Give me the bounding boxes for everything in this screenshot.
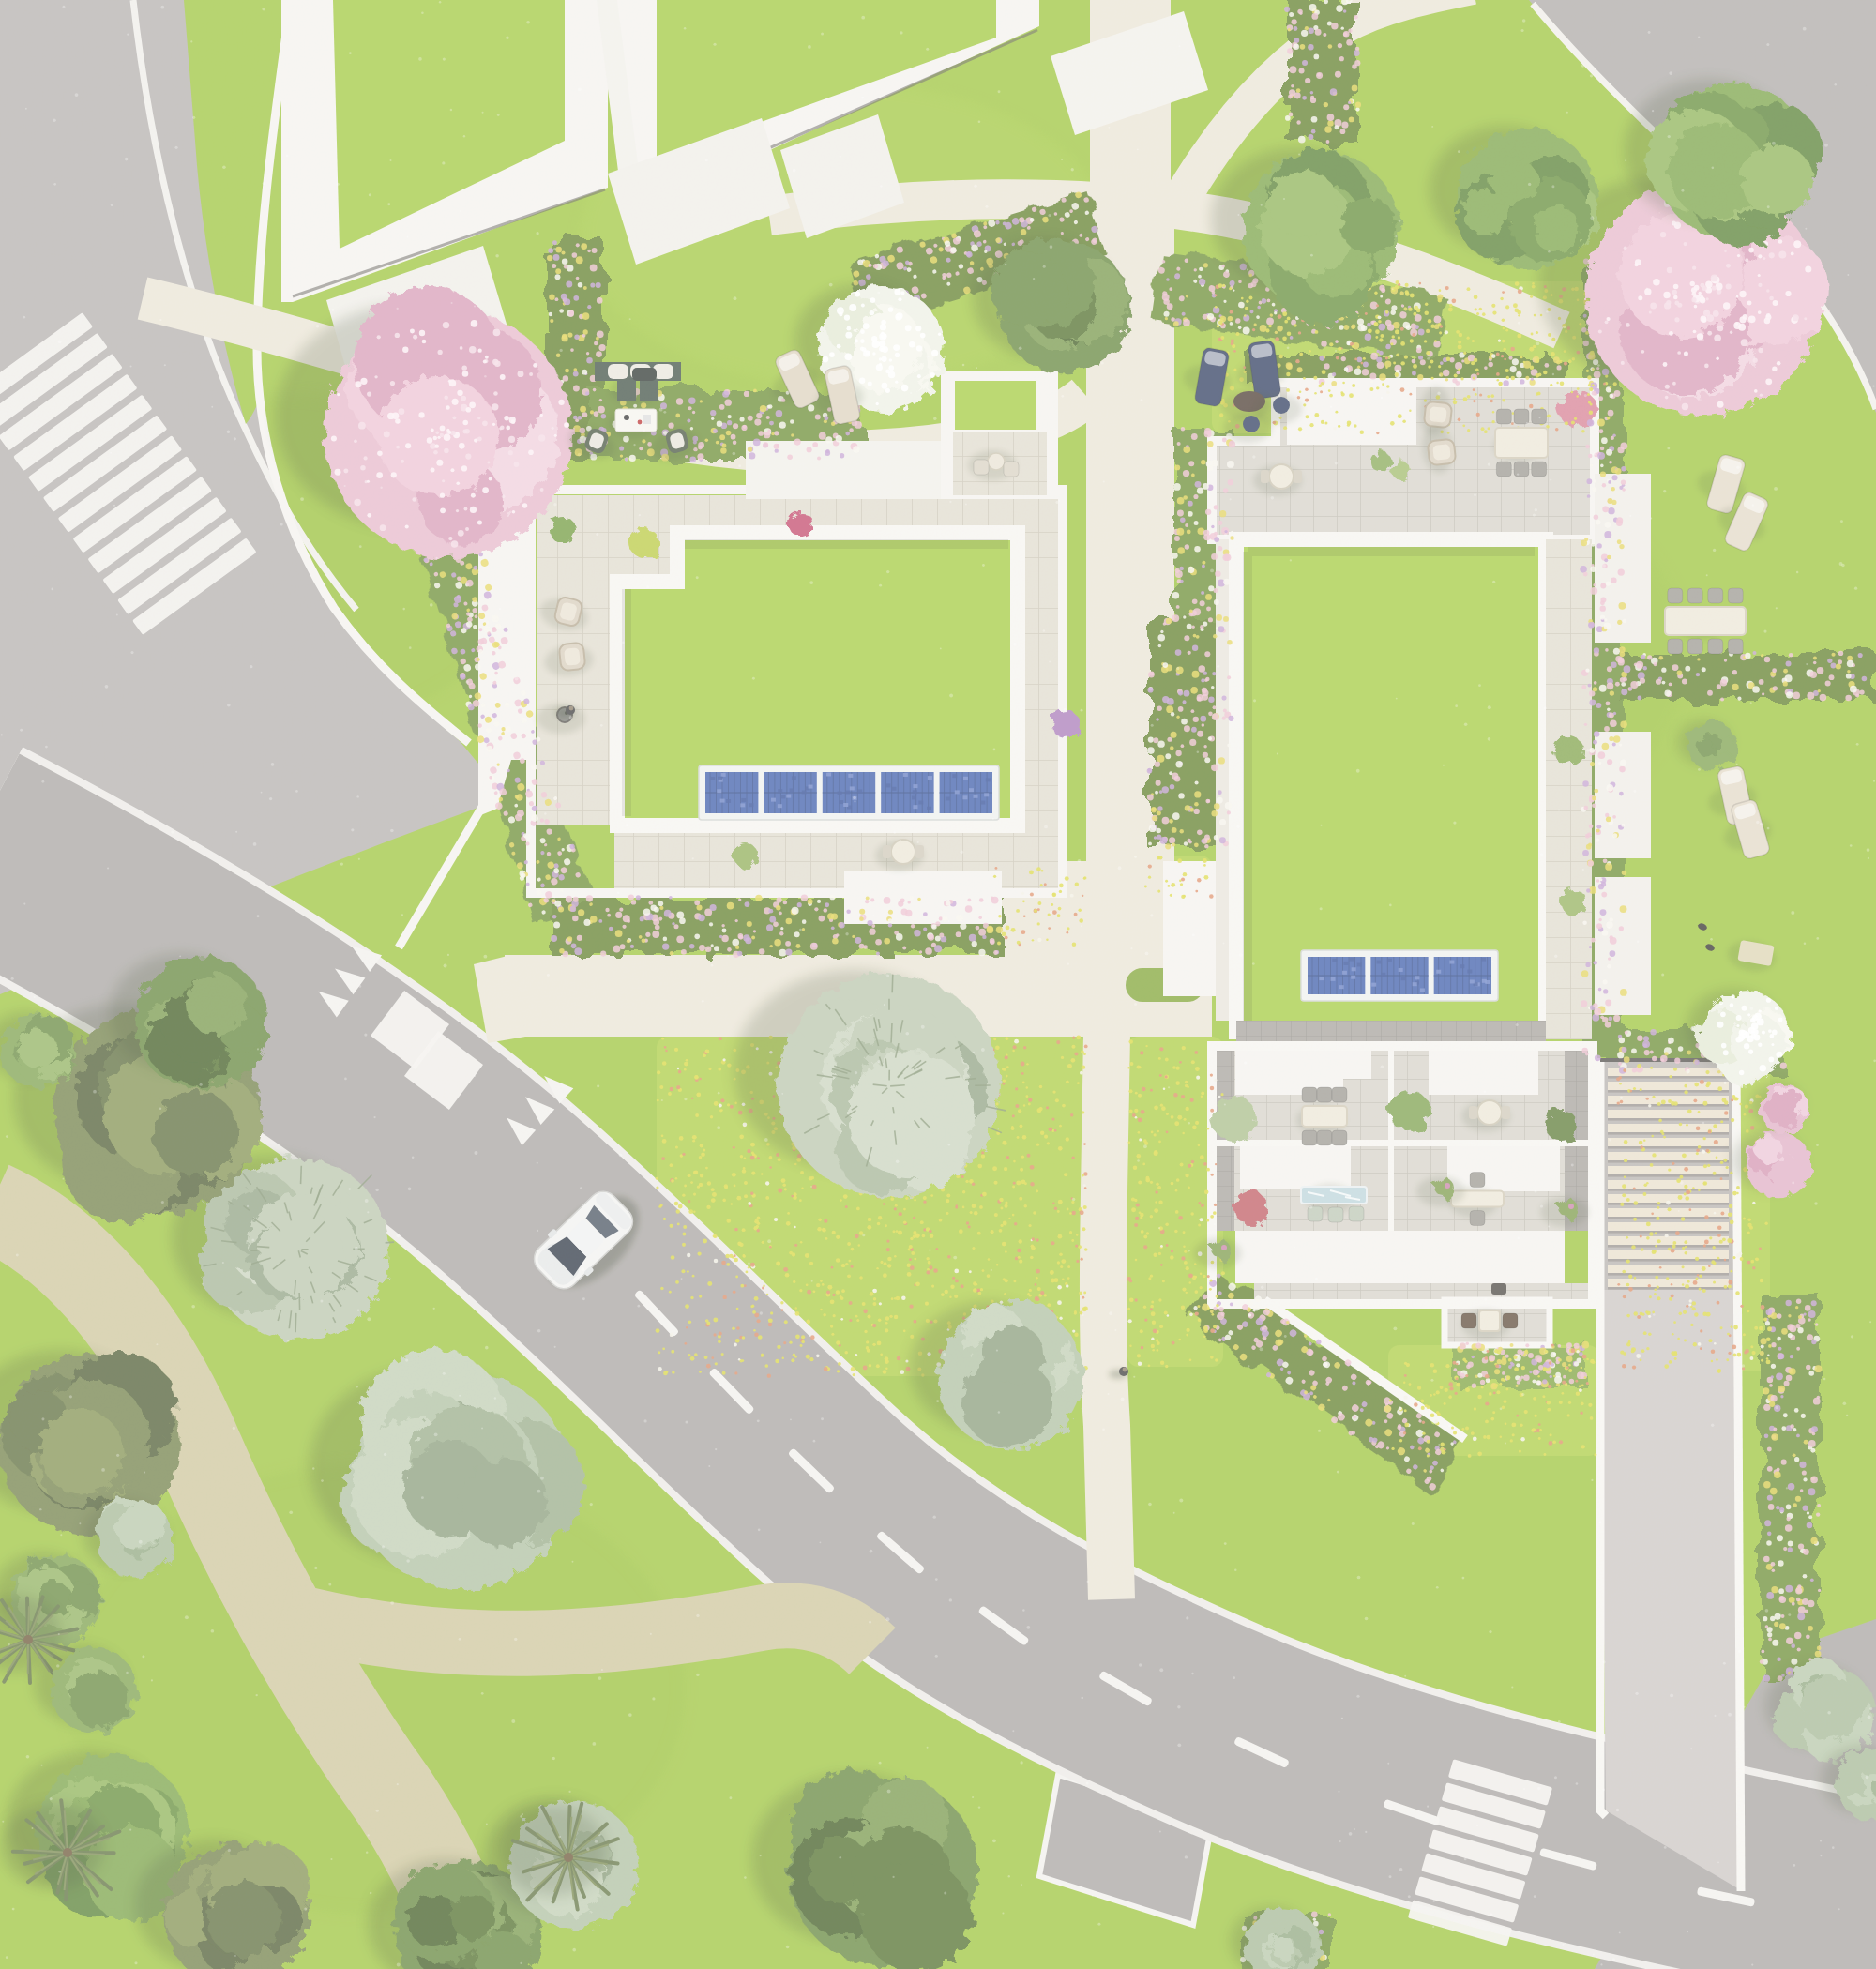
grain-overlay — [0, 0, 1876, 1969]
site-plan: Aerial top-down architectural site plan … — [0, 0, 1876, 1969]
site-plan-canvas — [0, 0, 1876, 1969]
